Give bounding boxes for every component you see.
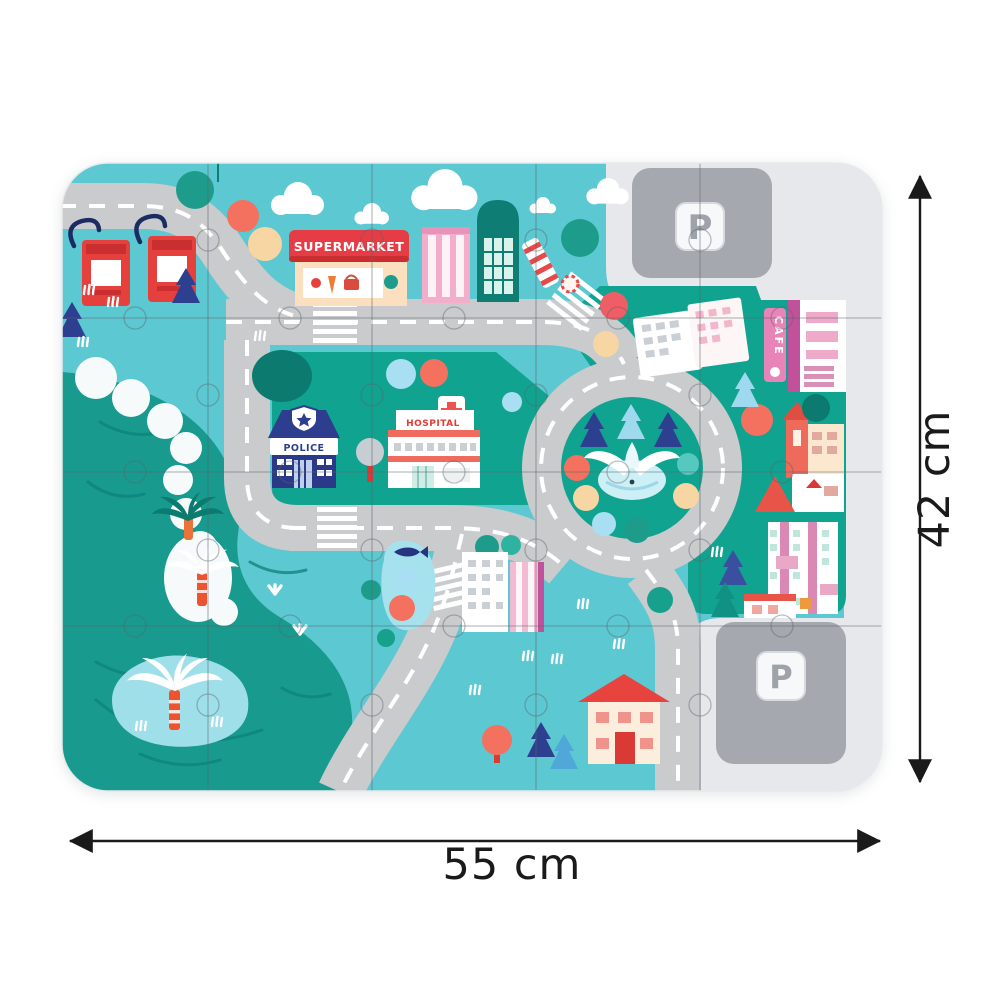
cafe-sign-text: CAFE xyxy=(772,316,785,356)
width-dimension: 55 cm xyxy=(70,840,880,890)
clock-tower-building xyxy=(477,200,519,302)
height-dimension-label: 42 cm xyxy=(910,410,960,549)
parking-sign-bottom-text: P xyxy=(769,658,792,696)
supermarket-building: SUPERMARKET xyxy=(289,230,409,306)
product-dimension-image: SUPERMARKET xyxy=(0,0,1000,1000)
candy-wheel-icon xyxy=(562,276,578,292)
width-dimension-label: 55 cm xyxy=(443,840,582,890)
height-dimension: 42 cm xyxy=(910,176,960,782)
police-sign-text: POLICE xyxy=(283,443,324,454)
play-mat: SUPERMARKET xyxy=(58,163,882,792)
police-station: POLICE xyxy=(268,406,340,488)
cafe-building: CAFE xyxy=(764,300,846,392)
hospital-sign-text: HOSPITAL xyxy=(406,419,460,429)
pink-building xyxy=(422,227,470,303)
puzzle-mat-illustration: SUPERMARKET xyxy=(0,0,1000,1000)
supermarket-sign-text: SUPERMARKET xyxy=(294,239,404,254)
parking-lot-bottom: P xyxy=(716,622,846,764)
parking-lot-top: P xyxy=(632,168,772,278)
cup-icon xyxy=(770,367,780,377)
